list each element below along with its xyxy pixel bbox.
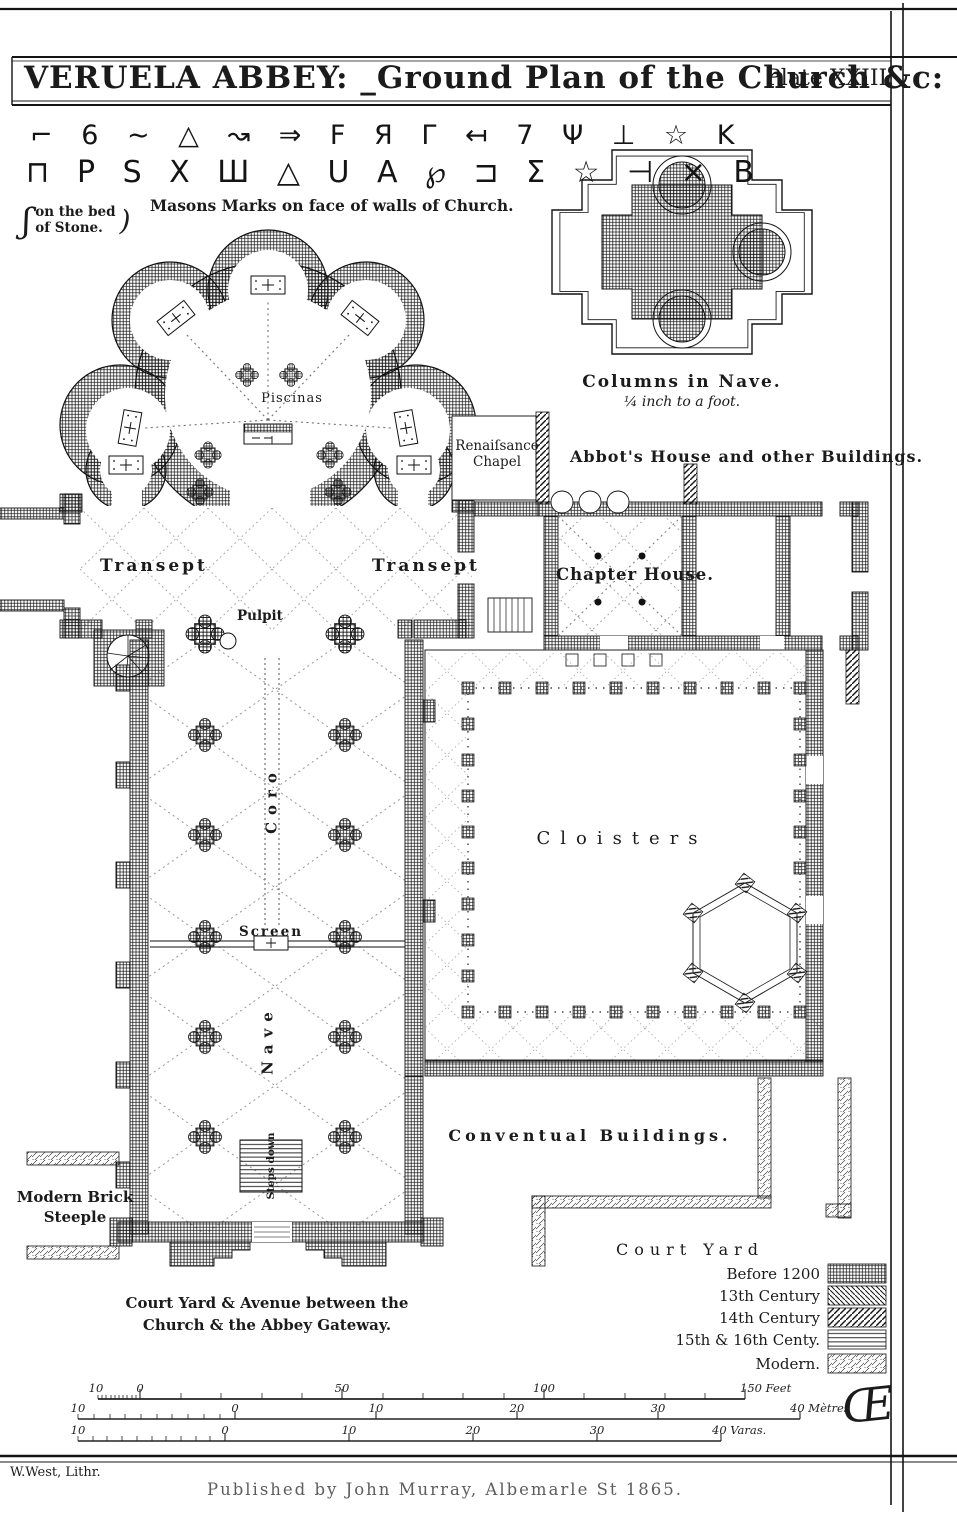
masons-marks-row2-icons: ⊓ P S X Ш △ U A ℘ ⊐ Σ ☆ ⊣ × B: [26, 158, 763, 188]
hexagon-pavilion: [683, 873, 807, 1013]
label-renaissance-chapel-1: Renaiſsance: [455, 440, 538, 454]
bed-note-open-glyph-icon: ʃ: [22, 204, 31, 238]
legend-label-14th-century: 14th Century: [719, 1311, 820, 1326]
label-avenue-2: Church & the Abbey Gateway.: [143, 1318, 391, 1333]
varas-scale-tick-label: 30: [590, 1425, 605, 1437]
label-modern-brick-1: Modern Brick: [17, 1190, 133, 1205]
feet-scale-tick-label: 10: [89, 1383, 104, 1395]
conventual-walls: [532, 1078, 851, 1266]
feet-scale-tick-label: 0: [136, 1383, 143, 1395]
label-steps-down: Steps down: [266, 1132, 277, 1199]
label-cloisters: Cloisters: [536, 830, 707, 848]
cloister: [425, 650, 823, 1076]
label-screen: Screen: [239, 926, 303, 940]
metres-scale-tick-label: 0: [231, 1403, 238, 1415]
metres-scale-tick-label: 10: [71, 1403, 86, 1415]
column-inset-caption: Columns in Nave.: [582, 374, 781, 391]
lithographer-credit: W.West, Lithr.: [10, 1466, 101, 1479]
masons-marks-row1-icons: ⌐ 6 ∼ △ ↝ ⇒ Ϝ Я Γ ↤ 7 Ψ ⊥ ☆ K: [30, 122, 744, 149]
label-transept-right: Transept: [372, 558, 480, 575]
legend-label-13th-century: 13th Century: [719, 1289, 820, 1304]
varas-scale-tick-label: 10: [342, 1425, 357, 1437]
legend-label-before-1200: Before 1200: [727, 1267, 820, 1282]
bed-note-line2: of Stone.: [35, 221, 115, 237]
plate-page: { "header": { "title": "VERUELA ABBEY: _…: [0, 0, 957, 1514]
feet-scale-unit-label: 150 Feet: [740, 1383, 791, 1395]
chevet: [60, 230, 476, 528]
label-conventual-buildings: Conventual Buildings.: [448, 1128, 731, 1144]
label-abbots-house: Abbot's House and other Buildings.: [570, 449, 923, 465]
metres-scale-tick-label: 20: [510, 1403, 525, 1415]
legend-label-modern: Modern.: [756, 1357, 820, 1372]
label-coro: Coro: [265, 766, 280, 834]
bed-of-stone-note: ʃ on the bed of Stone. ): [22, 204, 131, 238]
label-transept-left: Transept: [100, 558, 208, 575]
publisher-imprint: Published by John Murray, Albemarle St 1…: [207, 1482, 683, 1499]
label-modern-brick-2: Steeple: [44, 1210, 107, 1225]
label-court-yard: Court Yard: [616, 1242, 764, 1258]
varas-scale-tick-label: 0: [221, 1425, 228, 1437]
label-piscinas: Piscinas: [261, 392, 323, 405]
bed-note-close-glyph-icon: ): [120, 207, 131, 235]
metres-scale-unit-label: 40 Mètres: [790, 1403, 850, 1415]
column-inset-scale-note: ¼ inch to a foot.: [624, 395, 740, 409]
varas-scale-unit-label: 40 Varas.: [712, 1425, 766, 1437]
label-renaissance-chapel-2: Chapel: [473, 456, 521, 470]
artist-monogram-icon: Œ: [840, 1379, 897, 1430]
bed-note-line1: on the bed: [35, 205, 115, 221]
varas-scale-tick-label: 10: [71, 1425, 86, 1437]
varas-scale-tick-label: 20: [466, 1425, 481, 1437]
metres-scale-tick-label: 10: [369, 1403, 384, 1415]
label-chapter-house: Chapter House.: [556, 567, 714, 584]
masons-caption: Masons Marks on face of walls of Church.: [150, 198, 514, 214]
legend-label-15th-16th-century: 15th & 16th Centy.: [676, 1333, 821, 1348]
legend-swatches: [828, 1264, 886, 1373]
nave: [27, 640, 443, 1266]
label-nave: Nave: [261, 1005, 276, 1075]
metres-scale-tick-label: 30: [651, 1403, 666, 1415]
scale-bars: [78, 1389, 800, 1441]
label-pulpit: Pulpit: [237, 610, 283, 624]
label-avenue-1: Court Yard & Avenue between the: [126, 1296, 409, 1311]
feet-scale-tick-label: 100: [533, 1383, 555, 1395]
plate-number: Plate XXIII.: [766, 68, 894, 90]
feet-scale-tick-label: 50: [335, 1383, 350, 1395]
